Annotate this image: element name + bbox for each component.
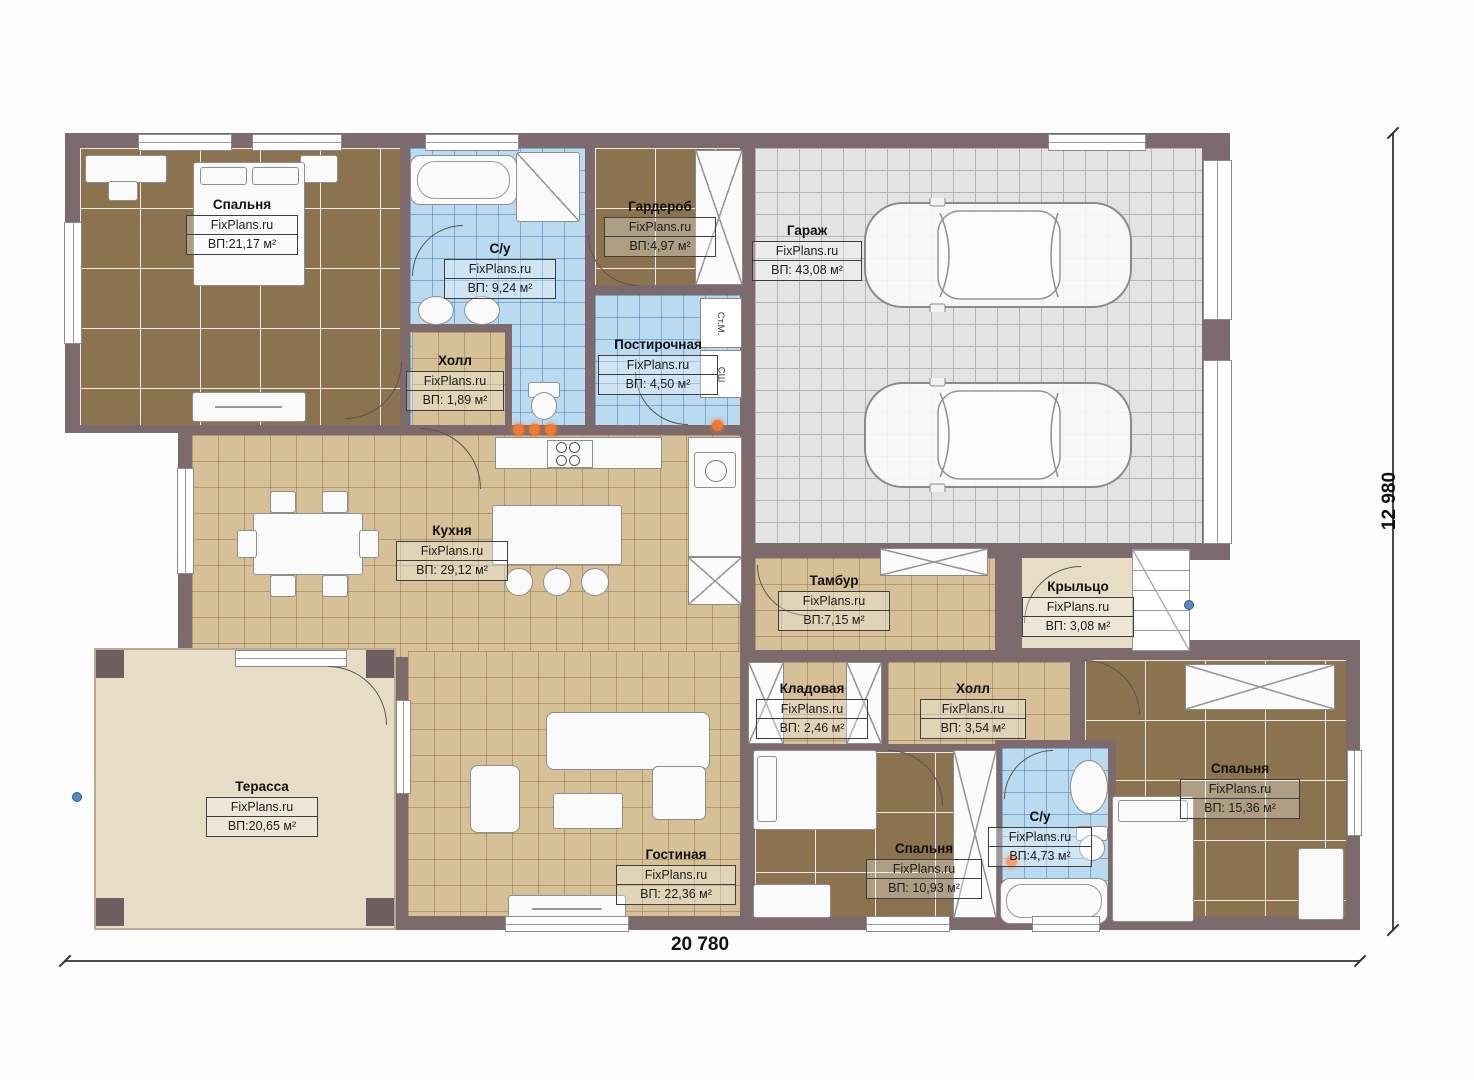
closet-icon [880, 548, 988, 576]
dining-table-icon [253, 513, 363, 575]
room-area: ВП: 22,36 м² [616, 884, 736, 905]
window [1347, 750, 1362, 836]
room-name: С/у [988, 808, 1092, 826]
light-marker-icon [529, 424, 540, 435]
desk-icon [1298, 848, 1344, 920]
room-area: ВП:21,17 м² [186, 234, 298, 255]
room-name: Спальня [1180, 760, 1300, 778]
room-name: Гараж [752, 222, 862, 240]
room-area: ВП:20,65 м² [206, 816, 318, 837]
porch-steps [1132, 549, 1190, 651]
room-area: ВП:7,15 м² [778, 610, 890, 631]
room-watermark: FixPlans.ru [752, 241, 862, 262]
window [505, 916, 629, 932]
window [138, 134, 232, 151]
dimension-line-width [65, 960, 1360, 962]
dresser-icon [300, 155, 338, 183]
room-area: ВП: 10,93 м² [866, 878, 982, 899]
chair-icon [270, 491, 296, 513]
kitchen-sink-icon [694, 452, 736, 488]
chair-icon [322, 491, 348, 513]
light-marker-icon [513, 424, 524, 435]
room-area: ВП: 2,46 м² [756, 718, 868, 739]
blue-marker-icon [1184, 600, 1194, 610]
room-label-living: Гостиная FixPlans.ru ВП: 22,36 м² [616, 846, 736, 905]
car-icon [862, 378, 1134, 492]
room-watermark: FixPlans.ru [444, 259, 556, 280]
tv-stand-icon [192, 392, 306, 422]
room-label-tambur: Тамбур FixPlans.ru ВП:7,15 м² [778, 572, 890, 631]
sink-basin [705, 460, 727, 482]
window [866, 916, 950, 932]
room-name: С/у [444, 240, 556, 258]
room-watermark: FixPlans.ru [1180, 779, 1300, 800]
room-label-terrace: Терасса FixPlans.ru ВП:20,65 м² [206, 778, 318, 837]
room-watermark: FixPlans.ru [604, 217, 716, 238]
room-label-bedroom-main: Спальня FixPlans.ru ВП:21,17 м² [186, 196, 298, 255]
toilet-bowl [531, 392, 557, 420]
room-area: ВП: 9,24 м² [444, 278, 556, 299]
window [1048, 134, 1146, 151]
armchair-icon [470, 765, 520, 833]
room-label-bathroom-main: С/у FixPlans.ru ВП: 9,24 м² [444, 240, 556, 299]
dimension-width-label: 20 780 [600, 934, 800, 956]
room-name: Кухня [396, 522, 508, 540]
room-label-hall-right: Холл FixPlans.ru ВП: 3,54 м² [920, 680, 1026, 739]
room-area: ВП: 1,89 м² [406, 390, 504, 411]
room-area: ВП: 4,50 м² [598, 374, 718, 395]
terrace-pillar [96, 650, 124, 678]
room-area: ВП: 29,12 м² [396, 560, 508, 581]
dresser-icon [753, 884, 831, 918]
fridge-icon [688, 557, 742, 605]
room-name: Спальня [866, 840, 982, 858]
pillow-icon [200, 167, 247, 185]
blue-marker-icon [72, 792, 82, 802]
garage-door [1203, 160, 1232, 320]
floor-plan-canvas: Ст.М. СШ [0, 0, 1474, 1080]
room-watermark: FixPlans.ru [206, 797, 318, 818]
terrace-pillar [96, 898, 124, 926]
room-area: ВП:4,97 м² [604, 236, 716, 257]
chair-icon [237, 530, 257, 558]
wall-hall-main-right [505, 324, 512, 428]
room-area: ВП: 15,36 м² [1180, 798, 1300, 819]
room-name: Постирочная [598, 336, 718, 354]
room-area: ВП:4,73 м² [988, 846, 1092, 867]
room-watermark: FixPlans.ru [396, 541, 508, 562]
room-name: Крыльцо [1022, 578, 1134, 596]
sofa-icon [546, 712, 710, 770]
bathtub-basin [1006, 884, 1102, 918]
pillow-icon [252, 167, 299, 185]
window [425, 134, 519, 151]
terrace-pillar [366, 650, 394, 678]
room-name: Кладовая [756, 680, 868, 698]
room-watermark: FixPlans.ru [616, 865, 736, 886]
terrace-pillar [366, 898, 394, 926]
sink-icon [1070, 760, 1108, 814]
kitchen-island-icon [492, 505, 622, 565]
sofa-chaise-icon [652, 766, 706, 820]
room-label-bedroom-right: Спальня FixPlans.ru ВП: 15,36 м² [1180, 760, 1300, 819]
stove-burners [556, 442, 580, 466]
room-watermark: FixPlans.ru [406, 371, 504, 392]
window [252, 134, 342, 151]
pillow-icon [1118, 800, 1188, 822]
room-name: Спальня [186, 196, 298, 214]
shower-icon [516, 152, 580, 222]
nightstand-icon [108, 181, 138, 201]
room-label-garage: Гараж FixPlans.ru ВП: 43,08 м² [752, 222, 862, 281]
room-name: Терасса [206, 778, 318, 796]
coffee-table-icon [553, 793, 623, 829]
room-watermark: FixPlans.ru [778, 591, 890, 612]
closet-icon [1185, 664, 1335, 710]
stool-icon [505, 568, 533, 596]
room-watermark: FixPlans.ru [1022, 597, 1134, 618]
bathtub-basin [417, 161, 510, 199]
window [396, 700, 411, 794]
sink-icon [464, 296, 500, 325]
window [64, 222, 82, 344]
room-label-storage: Кладовая FixPlans.ru ВП: 2,46 м² [756, 680, 868, 739]
room-label-hall-main: Холл FixPlans.ru ВП: 1,89 м² [406, 352, 504, 411]
washing-machine-label: Ст.М. [715, 311, 726, 334]
light-marker-icon [712, 420, 723, 431]
car-icon [862, 198, 1134, 312]
room-label-kitchen: Кухня FixPlans.ru ВП: 29,12 м² [396, 522, 508, 581]
room-watermark: FixPlans.ru [186, 215, 298, 236]
room-label-bathroom-right: С/у FixPlans.ru ВП:4,73 м² [988, 808, 1092, 867]
window [177, 468, 194, 574]
chair-icon [270, 575, 296, 597]
light-marker-icon [545, 424, 556, 435]
room-watermark: FixPlans.ru [920, 699, 1026, 720]
chair-icon [359, 530, 379, 558]
room-name: Холл [406, 352, 504, 370]
room-watermark: FixPlans.ru [988, 827, 1092, 848]
room-watermark: FixPlans.ru [598, 355, 718, 376]
room-name: Гостиная [616, 846, 736, 864]
pillow-icon [757, 756, 777, 822]
wall-bathroom-right-top [995, 740, 1116, 748]
wall-hall-main-top [406, 324, 512, 332]
room-area: ВП: 43,08 м² [752, 260, 862, 281]
stool-icon [581, 568, 609, 596]
room-watermark: FixPlans.ru [866, 859, 982, 880]
chair-icon [322, 575, 348, 597]
room-label-porch: Крыльцо FixPlans.ru ВП: 3,08 м² [1022, 578, 1134, 637]
room-name: Холл [920, 680, 1026, 698]
room-area: ВП: 3,54 м² [920, 718, 1026, 739]
room-label-bedroom-middle: Спальня FixPlans.ru ВП: 10,93 м² [866, 840, 982, 899]
window [1032, 916, 1100, 932]
room-label-laundry: Постирочная FixPlans.ru ВП: 4,50 м² [598, 336, 718, 395]
window [235, 650, 347, 667]
dresser-icon [85, 155, 167, 183]
room-name: Гардероб [604, 198, 716, 216]
bathtub-icon [410, 155, 517, 205]
stool-icon [543, 568, 571, 596]
room-area: ВП: 3,08 м² [1022, 616, 1134, 637]
room-name: Тамбур [778, 572, 890, 590]
dimension-height-label: 12 980 [1379, 451, 1401, 551]
garage-door [1203, 360, 1232, 544]
room-watermark: FixPlans.ru [756, 699, 868, 720]
sink-icon [418, 296, 454, 325]
room-label-wardrobe: Гардероб FixPlans.ru ВП:4,97 м² [604, 198, 716, 257]
